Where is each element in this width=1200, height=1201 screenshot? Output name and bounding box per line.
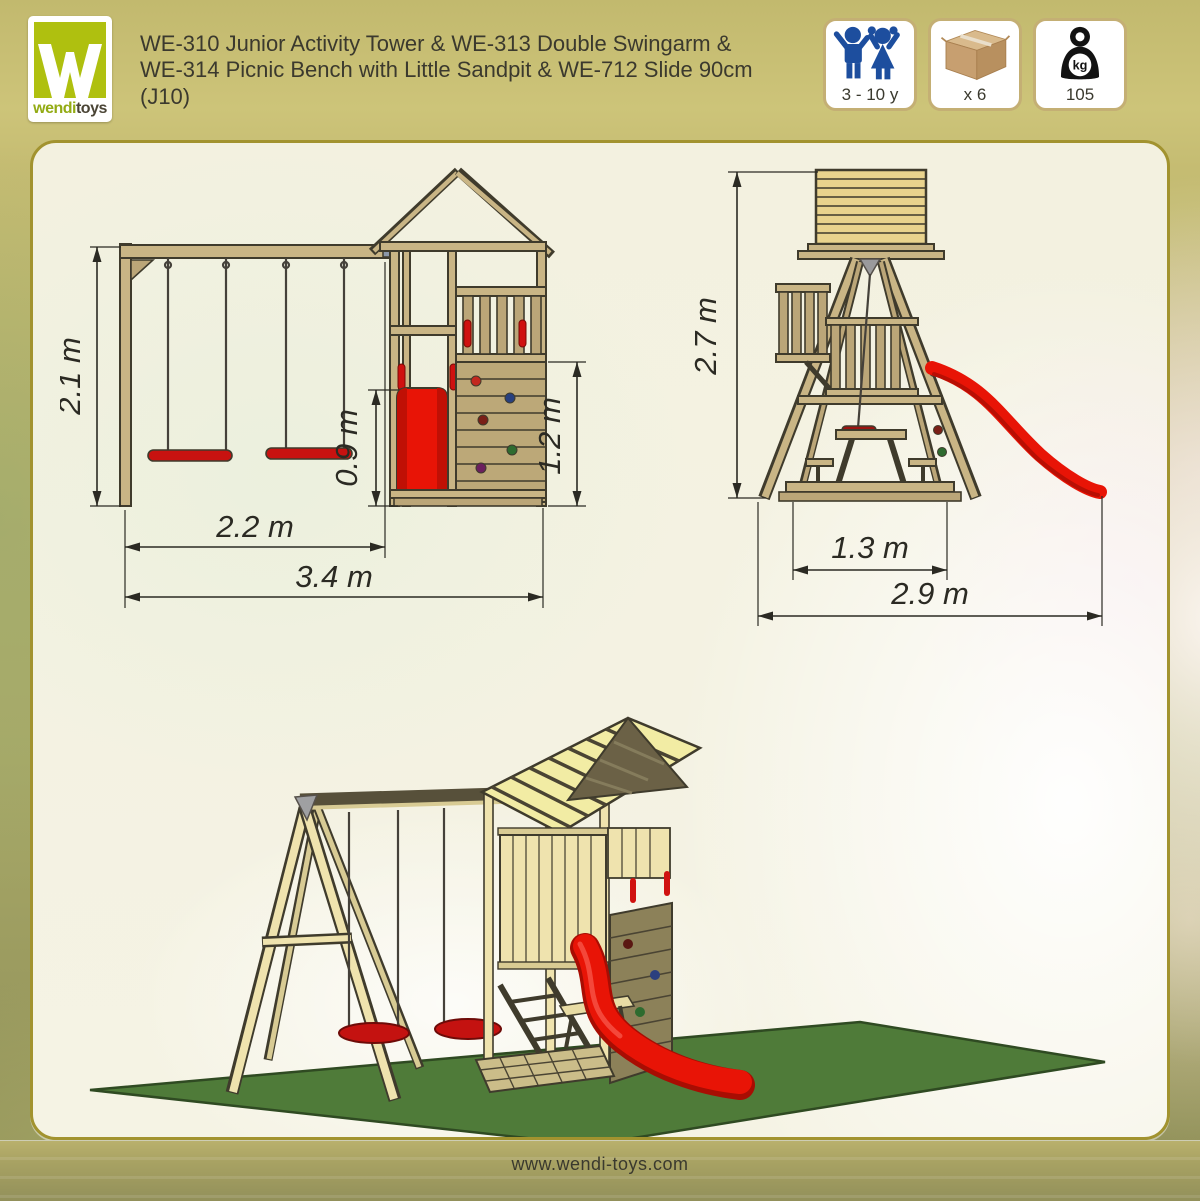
dim-frame-height: 2.1 m <box>60 337 87 416</box>
logo-word-toys: toys <box>76 100 107 117</box>
dim-total-width: 3.4 m <box>295 559 373 594</box>
dim-slide-height: 0.9 m <box>329 409 364 487</box>
content-panel: 2.1 m 0.9 m 1.2 m 2.2 m 3.4 m <box>30 140 1170 1140</box>
weight-badge: kg 105 <box>1033 18 1127 111</box>
children-icon <box>832 21 908 86</box>
website-url: www.wendi-toys.com <box>0 1154 1200 1175</box>
dim-total-depth: 2.9 m <box>890 576 969 611</box>
product-title-line2: WE-314 Picnic Bench with Little Sandpit … <box>140 57 840 83</box>
product-title-line3: (J10) <box>140 84 840 110</box>
logo-w-icon <box>34 22 106 98</box>
age-range-label: 3 - 10 y <box>842 86 899 105</box>
slide-profile <box>932 368 1100 495</box>
render-tower <box>476 718 700 1092</box>
picnic-table-front <box>806 430 936 484</box>
logo-word-wendi: wendi <box>33 100 76 117</box>
dim-base-width: 1.3 m <box>831 530 909 565</box>
product-title: WE-310 Junior Activity Tower & WE-313 Do… <box>140 31 840 110</box>
weight-label: 105 <box>1066 86 1094 105</box>
side-view-diagram: 2.1 m 0.9 m 1.2 m 2.2 m 3.4 m <box>60 150 620 630</box>
footer-band: www.wendi-toys.com <box>0 1140 1200 1201</box>
package-count-label: x 6 <box>964 86 987 105</box>
swings <box>148 258 352 461</box>
front-view-diagram: 2.7 m 1.3 m 2.9 m <box>670 150 1140 650</box>
weight-kg-icon: kg <box>1051 21 1109 86</box>
spec-badges: 3 - 10 y x 6 kg 105 <box>823 18 1127 111</box>
dim-tower-height: 2.7 m <box>688 297 723 376</box>
product-title-line1: WE-310 Junior Activity Tower & WE-313 Do… <box>140 31 840 57</box>
logo-wordmark: wenditoys <box>28 101 112 117</box>
wendi-toys-logo: wenditoys <box>28 16 112 122</box>
dim-swing-width: 2.2 m <box>215 509 294 544</box>
package-count-badge: x 6 <box>928 18 1022 111</box>
box-icon <box>936 21 1014 86</box>
kg-icon-text: kg <box>1073 58 1088 72</box>
age-range-badge: 3 - 10 y <box>823 18 917 111</box>
product-3d-render <box>60 680 1130 1140</box>
dim-wall-height: 1.2 m <box>532 397 567 475</box>
